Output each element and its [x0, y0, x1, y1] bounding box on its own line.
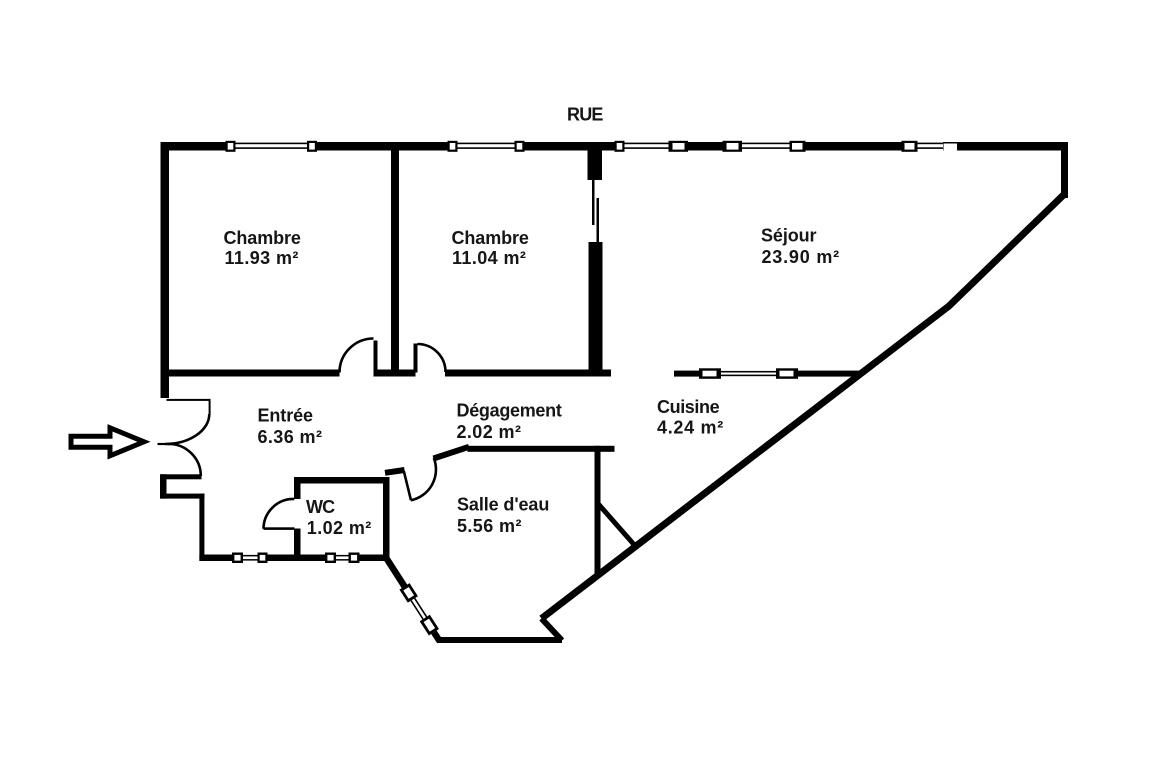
svg-text:Cuisine: Cuisine	[657, 397, 720, 417]
svg-text:Chambre: Chambre	[224, 228, 301, 248]
svg-text:1.02 m²: 1.02 m²	[307, 518, 372, 538]
svg-text:RUE: RUE	[567, 104, 603, 124]
svg-text:6.36 m²: 6.36 m²	[258, 427, 323, 447]
svg-text:11.93 m²: 11.93 m²	[225, 248, 299, 268]
svg-text:Dégagement: Dégagement	[457, 401, 562, 421]
svg-text:Entrée: Entrée	[258, 406, 314, 426]
svg-text:4.24 m²: 4.24 m²	[657, 418, 724, 438]
svg-text:Salle d'eau: Salle d'eau	[457, 495, 549, 515]
svg-text:WC: WC	[306, 497, 335, 517]
svg-text:11.04 m²: 11.04 m²	[452, 248, 526, 268]
svg-text:5.56 m²: 5.56 m²	[457, 516, 522, 536]
svg-text:Séjour: Séjour	[761, 226, 817, 246]
svg-text:23.90 m²: 23.90 m²	[762, 247, 840, 267]
svg-text:Chambre: Chambre	[452, 228, 529, 248]
svg-text:2.02 m²: 2.02 m²	[457, 422, 522, 442]
